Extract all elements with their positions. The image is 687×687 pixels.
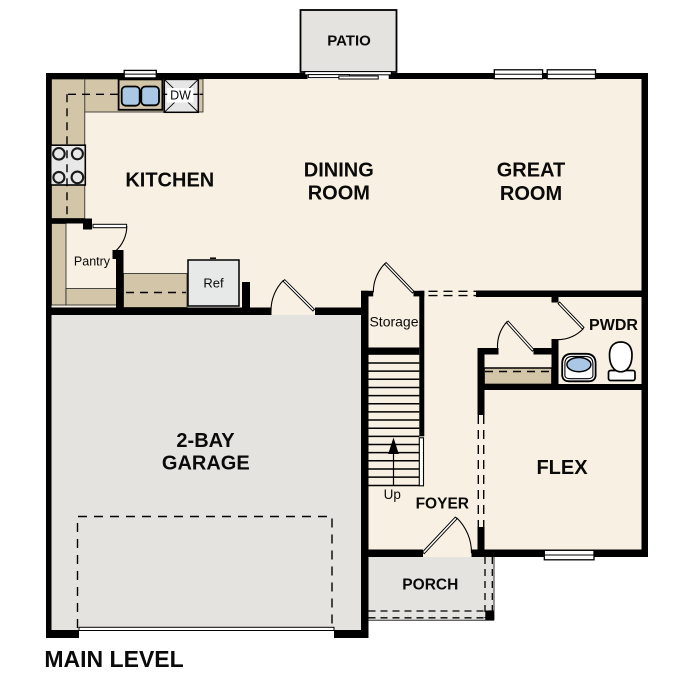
svg-text:Storage: Storage bbox=[369, 314, 418, 330]
svg-text:ROOM: ROOM bbox=[308, 182, 370, 204]
svg-text:KITCHEN: KITCHEN bbox=[125, 169, 214, 191]
svg-text:PATIO: PATIO bbox=[327, 32, 371, 49]
svg-text:Pantry: Pantry bbox=[74, 255, 111, 269]
svg-text:Ref: Ref bbox=[203, 276, 224, 291]
svg-text:PORCH: PORCH bbox=[402, 577, 458, 594]
svg-text:PWDR: PWDR bbox=[589, 317, 638, 334]
svg-text:ROOM: ROOM bbox=[500, 183, 562, 205]
svg-text:GARAGE: GARAGE bbox=[162, 452, 250, 474]
svg-text:2-BAY: 2-BAY bbox=[176, 430, 235, 452]
svg-text:FLEX: FLEX bbox=[536, 457, 588, 479]
svg-text:DW: DW bbox=[170, 89, 191, 103]
svg-text:MAIN LEVEL: MAIN LEVEL bbox=[44, 646, 183, 672]
svg-text:GREAT: GREAT bbox=[497, 159, 566, 181]
svg-text:DINING: DINING bbox=[304, 160, 374, 182]
svg-text:FOYER: FOYER bbox=[416, 496, 469, 513]
svg-text:Up: Up bbox=[384, 487, 401, 502]
